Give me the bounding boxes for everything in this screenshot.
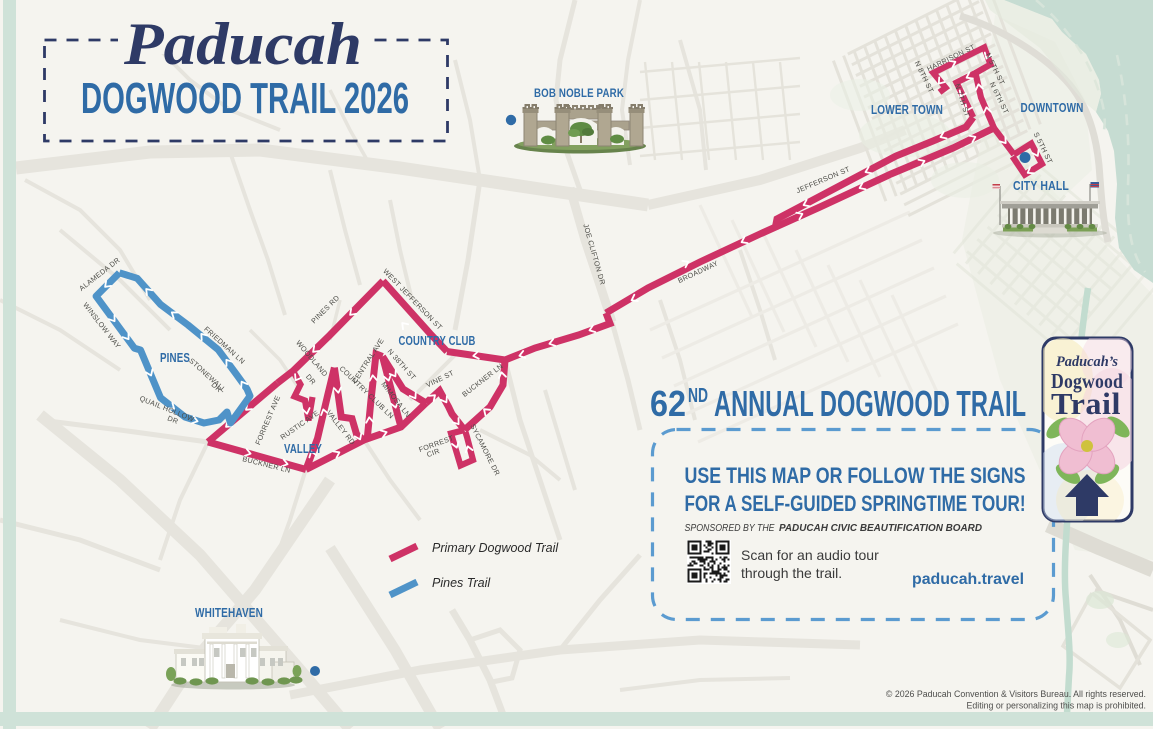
svg-text:62: 62 — [650, 383, 686, 424]
svg-text:ANNUAL DOGWOOD TRAIL: ANNUAL DOGWOOD TRAIL — [714, 383, 1026, 424]
svg-text:Editing or personalizing this: Editing or personalizing this map is pro… — [967, 701, 1146, 711]
svg-text:paducah.travel: paducah.travel — [912, 571, 1024, 588]
svg-text:through the trail.: through the trail. — [741, 565, 842, 581]
svg-text:VALLEY: VALLEY — [284, 442, 322, 456]
svg-text:Trail: Trail — [1051, 386, 1121, 421]
svg-text:© 2026 Paducah Convention & Vi: © 2026 Paducah Convention & Visitors Bur… — [886, 689, 1146, 699]
svg-text:Pines Trail: Pines Trail — [432, 576, 491, 590]
svg-text:PADUCAH CIVIC BEAUTIFICATION B: PADUCAH CIVIC BEAUTIFICATION BOARD — [779, 522, 982, 534]
svg-text:SPONSORED BY THE: SPONSORED BY THE — [685, 522, 776, 534]
svg-text:USE THIS MAP OR FOLLOW THE SIG: USE THIS MAP OR FOLLOW THE SIGNS — [685, 463, 1026, 488]
svg-text:FOR A SELF-GUIDED SPRINGTIME T: FOR A SELF-GUIDED SPRINGTIME TOUR! — [685, 491, 1026, 516]
svg-text:DOWNTOWN: DOWNTOWN — [1021, 100, 1084, 115]
svg-text:PINES: PINES — [160, 350, 190, 365]
svg-text:Paducah: Paducah — [123, 11, 362, 77]
svg-text:WHITEHAVEN: WHITEHAVEN — [195, 605, 263, 620]
svg-text:Scan for an audio tour: Scan for an audio tour — [741, 547, 879, 563]
svg-text:ND: ND — [688, 385, 708, 407]
svg-text:Paducah’s: Paducah’s — [1056, 354, 1118, 370]
svg-text:Primary Dogwood Trail: Primary Dogwood Trail — [432, 541, 559, 555]
svg-text:BOB NOBLE PARK: BOB NOBLE PARK — [534, 86, 624, 100]
svg-text:LOWER TOWN: LOWER TOWN — [871, 102, 943, 117]
svg-text:COUNTRY CLUB: COUNTRY CLUB — [399, 334, 476, 348]
svg-text:CITY HALL: CITY HALL — [1013, 179, 1069, 193]
svg-text:DOGWOOD TRAIL 2026: DOGWOOD TRAIL 2026 — [81, 74, 409, 123]
